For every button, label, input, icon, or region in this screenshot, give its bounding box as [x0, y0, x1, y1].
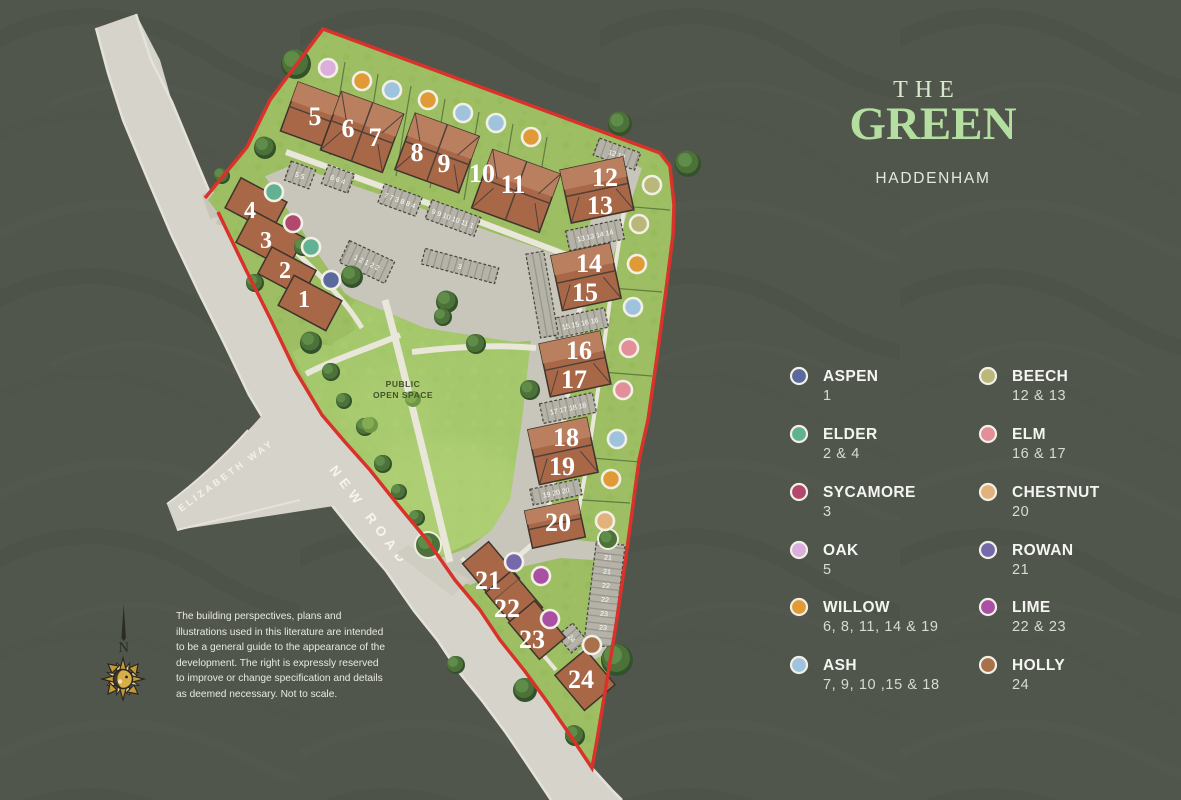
svg-text:1: 1 [298, 287, 310, 313]
svg-text:7: 7 [369, 123, 382, 152]
svg-text:5: 5 [823, 562, 832, 578]
svg-text:8: 8 [411, 138, 424, 167]
svg-text:18: 18 [553, 423, 579, 452]
svg-text:N: N [118, 640, 129, 656]
svg-text:2 & 4: 2 & 4 [823, 446, 860, 462]
svg-text:24: 24 [1012, 677, 1029, 693]
svg-text:12: 12 [592, 163, 618, 192]
svg-text:16: 16 [566, 336, 592, 365]
svg-text:to improve or change specifica: to improve or change specification and d… [176, 673, 383, 684]
svg-text:9: 9 [438, 149, 451, 178]
svg-text:ELDER: ELDER [823, 426, 878, 443]
svg-text:LIME: LIME [1012, 599, 1051, 616]
svg-text:21: 21 [475, 566, 501, 595]
svg-text:22: 22 [602, 583, 610, 591]
svg-text:OPEN SPACE: OPEN SPACE [373, 390, 433, 400]
svg-text:13: 13 [587, 191, 613, 220]
svg-text:ASH: ASH [823, 657, 857, 674]
svg-text:22: 22 [601, 597, 609, 605]
svg-text:ASPEN: ASPEN [823, 368, 878, 385]
svg-text:ELM: ELM [1012, 426, 1046, 443]
svg-text:1: 1 [823, 388, 832, 404]
svg-text:GREEN: GREEN [849, 98, 1016, 150]
svg-text:16 & 17: 16 & 17 [1012, 446, 1066, 462]
svg-text:to be a general guide to the a: to be a general guide to the appearance … [176, 642, 385, 653]
svg-text:as deemed necessary. Not to sc: as deemed necessary. Not to scale. [176, 689, 337, 700]
svg-text:HOLLY: HOLLY [1012, 657, 1065, 674]
svg-text:23: 23 [519, 625, 545, 654]
svg-text:5: 5 [309, 102, 322, 131]
svg-text:15: 15 [572, 278, 598, 307]
svg-text:6, 8, 11, 14 & 19: 6, 8, 11, 14 & 19 [823, 619, 939, 635]
svg-text:2: 2 [279, 258, 291, 284]
svg-text:17: 17 [561, 365, 587, 394]
svg-text:The building perspectives, pla: The building perspectives, plans and [176, 611, 342, 622]
svg-text:SYCAMORE: SYCAMORE [823, 484, 916, 501]
svg-text:21: 21 [604, 555, 612, 563]
svg-text:11: 11 [501, 170, 526, 199]
svg-text:OAK: OAK [823, 542, 859, 559]
svg-text:24: 24 [568, 665, 594, 694]
svg-text:WILLOW: WILLOW [823, 599, 890, 616]
svg-text:6: 6 [342, 114, 355, 143]
svg-text:20: 20 [1012, 504, 1029, 520]
svg-text:7, 9, 10 ,15 & 18: 7, 9, 10 ,15 & 18 [823, 677, 940, 693]
svg-text:20: 20 [545, 508, 571, 537]
svg-text:CHESTNUT: CHESTNUT [1012, 484, 1100, 501]
svg-text:19: 19 [549, 452, 575, 481]
svg-text:3: 3 [823, 504, 832, 520]
svg-text:HADDENHAM: HADDENHAM [875, 170, 990, 187]
svg-text:ROWAN: ROWAN [1012, 542, 1073, 559]
svg-text:3: 3 [260, 228, 272, 254]
svg-text:14: 14 [576, 249, 602, 278]
svg-text:23: 23 [600, 611, 608, 619]
svg-text:23: 23 [599, 625, 607, 633]
svg-text:PUBLIC: PUBLIC [386, 379, 421, 389]
svg-text:22: 22 [494, 594, 520, 623]
svg-text:22 & 23: 22 & 23 [1012, 619, 1066, 635]
svg-text:development. The right is expr: development. The right is expressly rese… [176, 658, 379, 669]
svg-text:21: 21 [1012, 562, 1029, 578]
svg-text:12 & 13: 12 & 13 [1012, 388, 1066, 404]
svg-text:illustrations used in this lit: illustrations used in this literature ar… [176, 627, 384, 638]
svg-text:4: 4 [244, 198, 256, 224]
svg-text:10: 10 [469, 159, 495, 188]
svg-text:BEECH: BEECH [1012, 368, 1068, 385]
svg-text:21: 21 [603, 569, 611, 577]
